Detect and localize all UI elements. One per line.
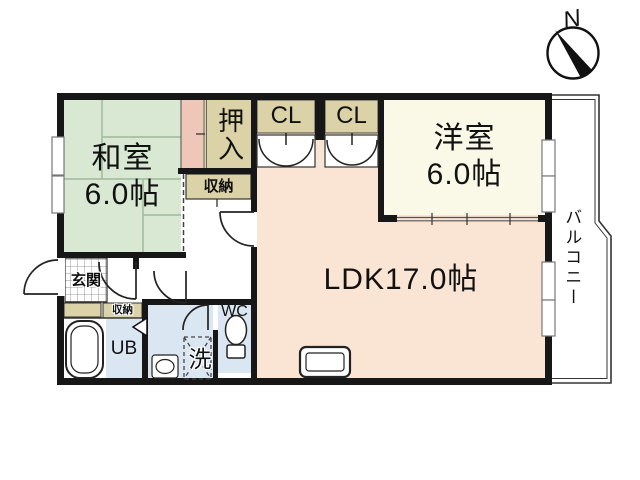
- sink-icon: [152, 355, 178, 378]
- toilet-label: WC: [218, 303, 251, 320]
- entrance-door: [24, 260, 58, 294]
- washitsu-window-upper: [52, 137, 64, 175]
- ldk-window-lower: [542, 300, 555, 336]
- ldk-door: [220, 212, 254, 246]
- toilet-icon: [226, 316, 247, 359]
- youshitsu-name: 洋室: [434, 121, 496, 157]
- closet-right-label: CL: [325, 100, 378, 133]
- storage-entry-label: 収納: [103, 304, 142, 317]
- laundry-label: 洗: [186, 346, 214, 374]
- washitsu-window-lower: [52, 176, 64, 213]
- compass-icon: [548, 28, 599, 79]
- floorplan-drawing: [0, 0, 640, 480]
- genkan-label: 玄関: [65, 271, 107, 290]
- washitsu-name: 和室: [92, 141, 154, 177]
- storage-hall-label: 収納: [186, 176, 251, 197]
- youshitsu-size: 6.0帖: [427, 157, 503, 193]
- balcony-label: バルコニー: [558, 185, 584, 330]
- ldk-label: LDK17.0帖: [257, 261, 545, 299]
- entrance-opening: [56, 258, 65, 296]
- oshiire-label: 押入: [207, 102, 251, 168]
- washroom-door: [154, 271, 186, 303]
- kitchen-counter-icon: [300, 347, 350, 377]
- bathtub-icon: [66, 321, 103, 378]
- shoe-cabinet-box: [64, 303, 101, 317]
- washitsu-label: 和室 6.0帖: [64, 132, 181, 222]
- washitsu-south-wall: [57, 252, 186, 258]
- washitsu-size: 6.0帖: [85, 177, 161, 213]
- youshitsu-label: 洋室 6.0帖: [384, 115, 545, 199]
- floorplan-page: 和室 6.0帖 押入 CL CL 洋室 6.0帖 LDK17.0帖 バルコニー …: [0, 0, 640, 480]
- closet-left-label: CL: [257, 100, 315, 133]
- unit-bath-label: UB: [106, 338, 142, 360]
